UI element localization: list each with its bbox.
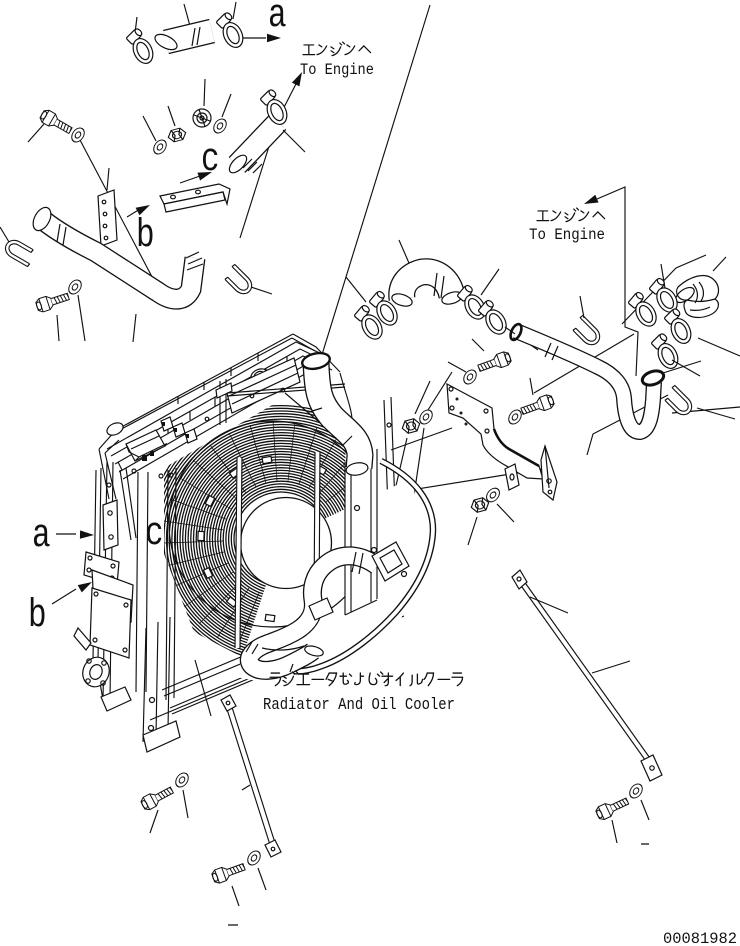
- svg-text:To Engine: To Engine: [529, 226, 605, 244]
- svg-text:c: c: [201, 137, 220, 183]
- svg-text:Radiator And Oil Cooler: Radiator And Oil Cooler: [263, 696, 455, 715]
- svg-text:c: c: [145, 511, 164, 557]
- svg-text:b: b: [28, 593, 47, 639]
- svg-text:b: b: [136, 213, 155, 259]
- svg-text:To Engine: To Engine: [300, 61, 374, 79]
- svg-text:00081982: 00081982: [663, 930, 737, 946]
- svg-text:a: a: [32, 513, 51, 559]
- svg-text:a: a: [268, 0, 287, 38]
